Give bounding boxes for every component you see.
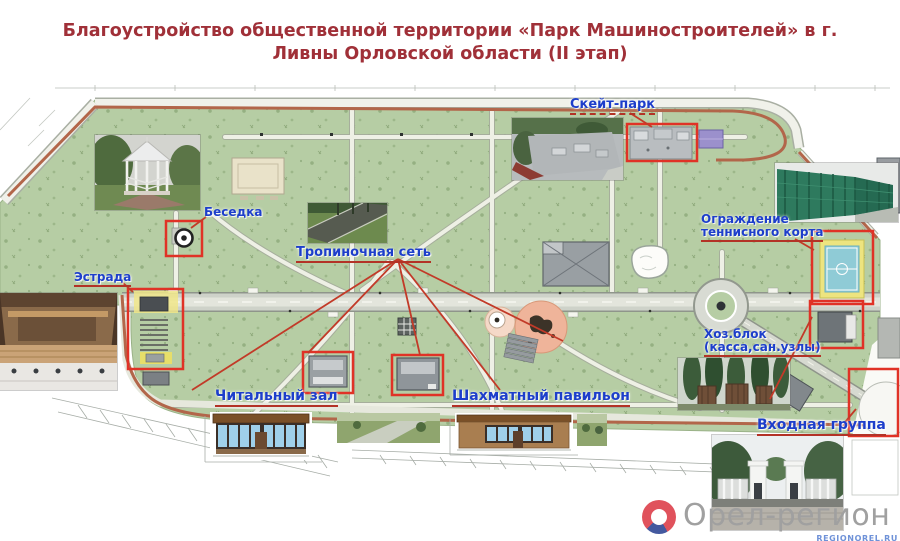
logo-name: Орел-регион <box>683 498 890 533</box>
label-gazebo-text: Беседка <box>204 205 262 219</box>
label-utility-block-line2: (касса,сан.узлы) <box>704 340 821 357</box>
utility-block-photo-art <box>678 358 790 410</box>
reading-room-elevation <box>210 412 312 460</box>
logo: Орел-регион REGIONOREL.RU <box>642 496 900 541</box>
render-strip-right-art <box>577 414 607 446</box>
title-line1: Благоустройство общественной территории … <box>0 20 900 43</box>
pond-plan <box>632 246 668 278</box>
label-entrance-group-text: Входная группа <box>757 417 886 436</box>
label-skate-park-text: Скейт-парк <box>570 97 655 115</box>
label-tennis-fence-line2: теннисного корта <box>701 225 823 242</box>
label-path-network: Тропиночная сеть <box>296 246 431 261</box>
pergola-plan <box>398 318 416 335</box>
utility-block-photo <box>678 358 790 410</box>
gazebo-photo <box>95 135 200 210</box>
render-strip-right <box>577 414 607 446</box>
path-photo-art <box>308 203 387 243</box>
chess-pavilion-plan <box>397 358 439 390</box>
label-chess-pavilion: Шахматный павильон <box>452 389 630 405</box>
tennis-court-plan <box>820 240 864 298</box>
label-entrance-group: Входная группа <box>757 418 886 434</box>
label-reading-room: Читальный зал <box>215 389 338 405</box>
render-strip-left <box>337 413 440 443</box>
title-line2: Ливны Орловской области (II этап) <box>0 43 900 66</box>
slide: Благоустройство общественной территории … <box>0 0 900 541</box>
reading-room-plan <box>309 356 347 387</box>
reading-room-elevation-art <box>210 412 312 460</box>
label-tennis-fence-line1: Ограждение <box>701 212 789 226</box>
purple-court-plan <box>699 130 723 148</box>
label-utility-block: Хоз.блок (касса,сан.узлы) <box>704 328 821 355</box>
render-strip-left-art <box>337 413 440 443</box>
logo-ring-icon <box>642 500 676 534</box>
stage-photo-art <box>0 293 117 390</box>
gazebo-plan-symbol <box>172 228 193 247</box>
label-path-network-text: Тропиночная сеть <box>296 245 431 263</box>
skate-park-photo <box>512 118 623 180</box>
logo-site-url: REGIONOREL.RU <box>816 534 898 541</box>
label-reading-room-text: Читальный зал <box>215 388 338 407</box>
label-stage-text: Эстрада <box>74 270 131 287</box>
label-stage: Эстрада <box>74 271 131 284</box>
gazebo-photo-art <box>95 135 200 210</box>
plaza-circle <box>694 279 748 333</box>
label-tennis-fence: Ограждение теннисного корта <box>701 213 823 240</box>
stage-photo <box>0 293 117 390</box>
beige-building-plan <box>232 158 284 200</box>
chess-pavilion-elevation <box>455 413 573 453</box>
label-chess-pavilion-text: Шахматный павильон <box>452 388 630 407</box>
large-building-plan <box>543 242 609 286</box>
label-utility-block-line1: Хоз.блок <box>704 327 767 341</box>
path-photo <box>308 203 387 243</box>
label-skate-park: Скейт-парк <box>570 98 655 113</box>
skate-park-plan <box>630 127 692 159</box>
page-title: Благоустройство общественной территории … <box>0 20 900 66</box>
label-gazebo: Беседка <box>204 206 262 219</box>
utility-building-plan <box>818 312 856 342</box>
chess-pavilion-elevation-art <box>455 413 573 453</box>
skate-park-photo-art <box>512 118 623 180</box>
